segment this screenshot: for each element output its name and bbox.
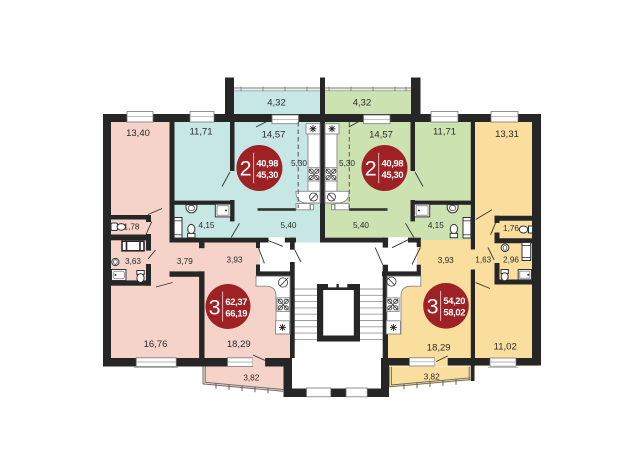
svg-text:3,82: 3,82 xyxy=(243,373,259,382)
svg-text:5,30: 5,30 xyxy=(291,159,307,168)
svg-text:13,40: 13,40 xyxy=(126,128,150,139)
svg-text:45,30: 45,30 xyxy=(382,170,404,180)
svg-text:2: 2 xyxy=(240,157,252,181)
svg-text:2,96: 2,96 xyxy=(503,256,519,265)
svg-text:11,71: 11,71 xyxy=(189,127,212,138)
svg-text:3,79: 3,79 xyxy=(177,257,193,266)
svg-text:3,63: 3,63 xyxy=(125,257,141,266)
svg-text:1,63: 1,63 xyxy=(475,256,491,265)
svg-text:4,32: 4,32 xyxy=(353,98,372,109)
svg-text:5,40: 5,40 xyxy=(353,221,369,230)
svg-text:14,57: 14,57 xyxy=(369,129,393,140)
svg-text:11,02: 11,02 xyxy=(494,341,517,352)
svg-text:40,98: 40,98 xyxy=(382,158,404,168)
svg-text:5,30: 5,30 xyxy=(339,159,355,168)
svg-text:3: 3 xyxy=(209,295,221,319)
svg-text:40,98: 40,98 xyxy=(256,158,278,168)
svg-text:3,82: 3,82 xyxy=(424,373,440,382)
svg-text:18,29: 18,29 xyxy=(227,339,251,350)
svg-text:11,71: 11,71 xyxy=(433,126,456,137)
svg-text:2: 2 xyxy=(365,157,377,181)
svg-text:54,20: 54,20 xyxy=(443,296,465,306)
svg-text:1,76: 1,76 xyxy=(503,224,519,233)
svg-text:66,19: 66,19 xyxy=(225,308,247,318)
svg-text:58,02: 58,02 xyxy=(443,308,465,318)
svg-text:14,57: 14,57 xyxy=(262,129,286,140)
svg-text:4,32: 4,32 xyxy=(267,98,286,109)
svg-text:1,78: 1,78 xyxy=(124,223,140,232)
svg-text:3: 3 xyxy=(427,295,439,319)
svg-text:3,93: 3,93 xyxy=(438,256,454,265)
svg-text:18,29: 18,29 xyxy=(427,342,451,353)
svg-text:3,93: 3,93 xyxy=(227,256,243,265)
svg-text:13,31: 13,31 xyxy=(495,129,519,140)
svg-text:5,40: 5,40 xyxy=(281,221,297,230)
svg-text:62,37: 62,37 xyxy=(225,297,247,307)
svg-text:16,76: 16,76 xyxy=(144,339,168,350)
svg-text:4,15: 4,15 xyxy=(199,221,215,230)
svg-text:45,30: 45,30 xyxy=(256,170,278,180)
svg-text:4,15: 4,15 xyxy=(428,221,444,230)
